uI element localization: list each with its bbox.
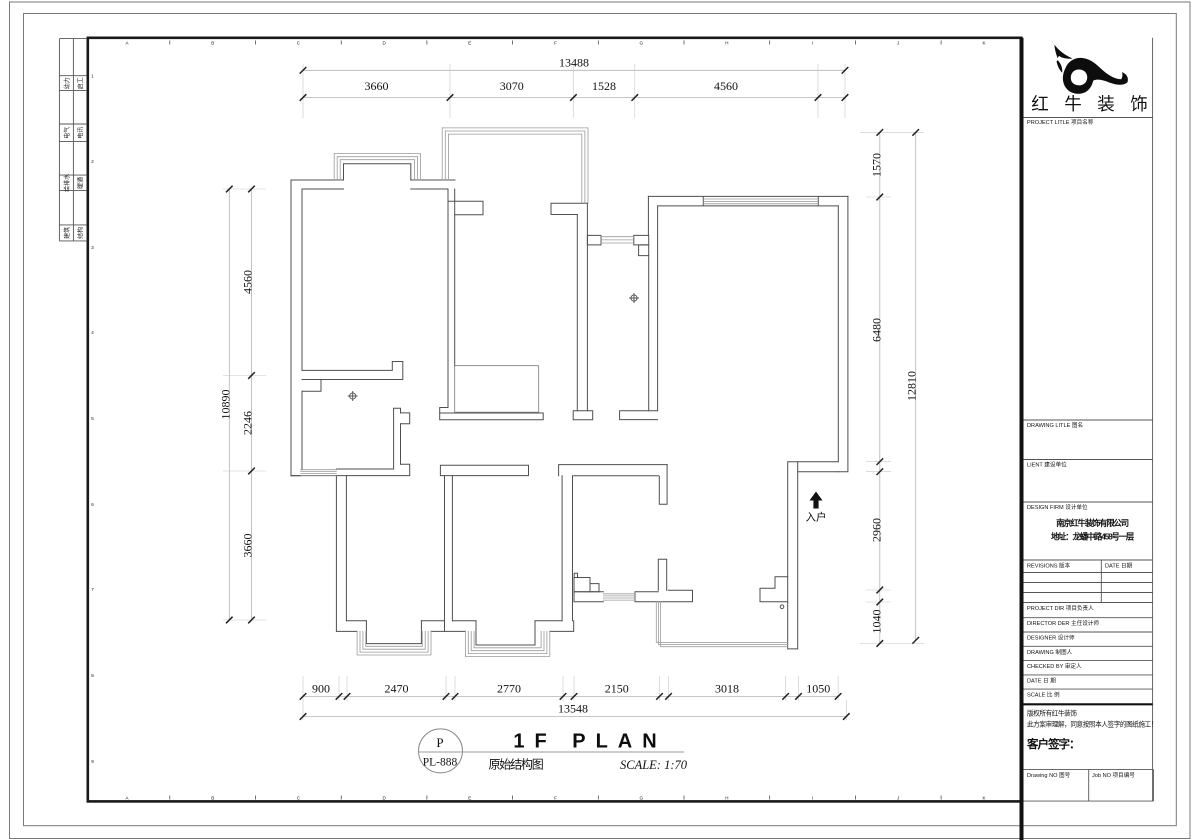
svg-text:2770: 2770: [497, 682, 521, 696]
svg-text:K: K: [982, 796, 985, 801]
svg-text:1570: 1570: [870, 153, 884, 177]
svg-text:DIRECTOR DER 主任设计师: DIRECTOR DER 主任设计师: [1027, 619, 1099, 627]
svg-text:P: P: [436, 735, 443, 750]
svg-text:LIENT 建设单位: LIENT 建设单位: [1027, 461, 1067, 469]
svg-text:结构: 结构: [77, 227, 85, 239]
svg-text:9: 9: [91, 759, 94, 764]
svg-text:7: 7: [91, 587, 94, 592]
svg-text:B: B: [211, 41, 214, 46]
svg-text:3070: 3070: [500, 79, 524, 93]
svg-text:版权所有红牛装饰: 版权所有红牛装饰: [1027, 709, 1077, 718]
svg-text:H: H: [725, 41, 728, 46]
svg-text:A: A: [125, 41, 128, 46]
svg-text:CHECKED BY 审定人: CHECKED BY 审定人: [1027, 662, 1082, 670]
svg-text:此方案审理解，同意按照本人签字的图纸施工！: 此方案审理解，同意按照本人签字的图纸施工！: [1027, 720, 1157, 729]
svg-text:K: K: [982, 41, 985, 46]
svg-text:I: I: [812, 41, 813, 46]
svg-text:地址：龙蟠中路458号一层: 地址：龙蟠中路458号一层: [1051, 532, 1135, 542]
svg-text:G: G: [639, 796, 643, 801]
svg-text:4560: 4560: [714, 79, 738, 93]
svg-text:SCALE: 1:70: SCALE: 1:70: [620, 758, 688, 772]
svg-text:6480: 6480: [870, 318, 884, 342]
svg-text:4560: 4560: [241, 270, 255, 294]
svg-text:1040: 1040: [870, 610, 884, 634]
svg-text:PROJECT DIR 项目负责人: PROJECT DIR 项目负责人: [1027, 604, 1094, 612]
svg-text:Job NO 项目编号: Job NO 项目编号: [1092, 771, 1135, 779]
svg-text:3018: 3018: [715, 682, 739, 696]
svg-text:饰: 饰: [1130, 94, 1148, 114]
svg-text:J: J: [897, 41, 899, 46]
svg-text:H: H: [725, 796, 728, 801]
svg-text:原始结构图: 原始结构图: [489, 757, 543, 772]
svg-text:3660: 3660: [241, 534, 255, 558]
svg-text:A: A: [125, 796, 128, 801]
svg-text:6: 6: [91, 502, 94, 507]
svg-text:电讯: 电讯: [77, 127, 85, 139]
svg-text:建筑: 建筑: [63, 227, 71, 239]
svg-text:SCALE 比 例: SCALE 比 例: [1027, 691, 1060, 699]
svg-text:1F PLAN: 1F PLAN: [513, 731, 666, 753]
svg-text:F: F: [554, 41, 557, 46]
svg-text:红: 红: [1031, 94, 1049, 114]
svg-text:2470: 2470: [385, 682, 409, 696]
svg-text:3: 3: [91, 245, 94, 250]
svg-text:5: 5: [91, 416, 94, 421]
svg-text:F: F: [554, 796, 557, 801]
svg-text:2246: 2246: [241, 411, 255, 435]
svg-text:DATE 日期: DATE 日期: [1105, 563, 1133, 570]
svg-text:幼力: 幼力: [63, 77, 71, 89]
svg-text:2150: 2150: [605, 682, 629, 696]
svg-text:10890: 10890: [219, 390, 233, 420]
svg-text:13488: 13488: [559, 56, 589, 70]
svg-text:13548: 13548: [558, 702, 588, 716]
svg-text:G: G: [639, 41, 643, 46]
svg-text:DATE 日 期: DATE 日 期: [1027, 678, 1056, 685]
svg-text:电气: 电气: [63, 127, 71, 139]
svg-text:客户签字：: 客户签字：: [1026, 737, 1080, 751]
svg-text:入户: 入户: [806, 511, 827, 524]
svg-text:南京红牛装饰有限公司: 南京红牛装饰有限公司: [1056, 518, 1129, 528]
svg-text:C: C: [297, 41, 301, 46]
svg-text:2960: 2960: [870, 518, 884, 542]
svg-text:I: I: [812, 796, 813, 801]
svg-text:E: E: [468, 41, 471, 46]
svg-text:8: 8: [91, 673, 94, 678]
svg-text:DESIGN FIRM 设计单位: DESIGN FIRM 设计单位: [1027, 503, 1088, 511]
svg-text:启工: 启工: [77, 77, 85, 89]
svg-text:REVISIONS 版本: REVISIONS 版本: [1027, 562, 1071, 570]
svg-text:3660: 3660: [365, 79, 389, 93]
svg-text:1050: 1050: [806, 682, 830, 696]
svg-text:1528: 1528: [592, 79, 616, 93]
svg-text:PL-888: PL-888: [423, 757, 458, 769]
svg-text:2: 2: [91, 159, 94, 164]
svg-text:装: 装: [1097, 94, 1115, 114]
svg-text:Drawing NO 图号: Drawing NO 图号: [1027, 771, 1071, 779]
svg-text:牛: 牛: [1064, 94, 1082, 114]
svg-text:900: 900: [312, 682, 330, 696]
svg-text:C: C: [297, 796, 301, 801]
svg-text:PROJECT LITLE 项目名称: PROJECT LITLE 项目名称: [1027, 118, 1094, 126]
svg-text:暖通: 暖通: [77, 177, 85, 189]
svg-text:DRAWING LITLE 图名: DRAWING LITLE 图名: [1027, 421, 1083, 429]
svg-text:DESIGNER 设计师: DESIGNER 设计师: [1027, 634, 1075, 642]
svg-text:D: D: [382, 796, 386, 801]
svg-text:给排水: 给排水: [63, 174, 71, 192]
svg-text:B: B: [211, 796, 214, 801]
svg-text:4: 4: [91, 330, 94, 335]
svg-text:J: J: [897, 796, 899, 801]
svg-text:D: D: [382, 41, 386, 46]
svg-text:DRAWING 制图人: DRAWING 制图人: [1027, 648, 1073, 656]
svg-text:E: E: [468, 796, 471, 801]
svg-text:1: 1: [91, 74, 94, 79]
svg-text:12810: 12810: [905, 371, 919, 401]
